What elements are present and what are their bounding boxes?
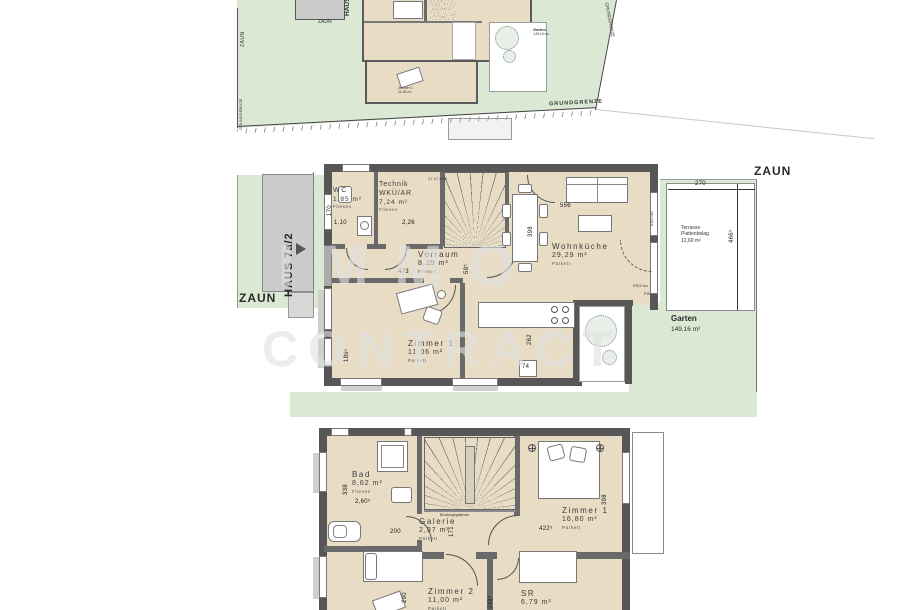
window	[342, 164, 370, 172]
gf-glass-east-note: ESG iso	[649, 211, 654, 226]
gf-room-zimmer1-label: Zimmer 1 11,06 m² Parkett	[408, 339, 455, 363]
site-mini-hall-white	[452, 22, 476, 60]
tree-icon	[602, 350, 617, 365]
gf-glass-south-note: ESG iso	[633, 283, 648, 288]
site-mini-stairs	[430, 0, 456, 20]
gf-haus-label: HAUS 7a/2	[283, 232, 295, 297]
site-garten-label: Garten 149,16 m²	[533, 27, 549, 36]
gf-neighbor-dashed-line	[313, 172, 314, 294]
dim-zimmer1-width: 422⁵	[539, 526, 553, 532]
gf-room-vorraum-label: Vorraum 8,29 m² Fliesen	[418, 250, 459, 274]
wall	[625, 303, 632, 384]
window	[319, 556, 327, 598]
tree-icon	[495, 26, 519, 50]
site-neighbor-building	[295, 0, 345, 20]
window-sill	[318, 290, 324, 334]
gf-room-technik-label: Technik WKÜ/AR 7,24 m² Fliesen	[379, 181, 412, 212]
uf-side-strip	[632, 432, 664, 554]
sink	[391, 487, 412, 503]
gf-terrasse	[666, 183, 755, 311]
dim-ess-height: 398	[528, 226, 534, 237]
chair	[502, 232, 511, 246]
ceiling-fixture-icon	[528, 444, 536, 452]
uf-room-zimmer1-label: Zimmer 1 16,80 m² Parkett	[562, 506, 609, 530]
wall	[417, 436, 422, 514]
tree-icon	[585, 315, 617, 347]
gf-glass-fix-note: FIX	[644, 291, 650, 296]
tree-icon	[503, 50, 516, 63]
site-zaun-left-label: ZAUN	[240, 31, 246, 47]
gf-zaun-right-label: ZAUN	[754, 164, 791, 178]
site-neighbor-zaun-label: ZAUN	[318, 19, 332, 25]
uf-stairs-railing	[424, 510, 516, 512]
site-mini-room-label: Zimmer 1 11,06 m²	[398, 86, 413, 95]
window	[324, 288, 332, 330]
wall	[476, 552, 497, 559]
chair	[502, 204, 511, 218]
wall	[374, 172, 378, 246]
chair	[518, 263, 532, 272]
dim-zimmer1-height: 189⁵	[344, 348, 350, 362]
site-mini-wing	[365, 60, 478, 104]
dim-kueche-width: 74	[522, 364, 529, 370]
washing-machine-drum	[360, 221, 369, 230]
pillow	[365, 553, 377, 580]
sofa-divider	[597, 177, 598, 203]
window	[340, 378, 382, 386]
dim-kueche-height: 262	[527, 334, 533, 345]
gf-room-wc-label: WC 1,85 m² Fliesen	[333, 187, 362, 210]
cooktop-burner	[551, 317, 558, 324]
gf-garden-bottom-strip	[290, 392, 757, 417]
uf-room-sr-label: SR 6,79 m²	[521, 589, 552, 608]
wardrobe	[519, 551, 577, 583]
dim-vorraum-height: 58⁵	[464, 264, 470, 274]
chair	[518, 184, 532, 193]
uf-room-bad-label: Bad 8,62 m² Fliesen	[352, 470, 383, 494]
shower-inner	[381, 445, 404, 468]
gf-zaun-left-label: ZAUN	[239, 291, 276, 305]
window-sill	[341, 386, 382, 391]
dimension-line	[737, 184, 738, 310]
ceiling-fixture-icon	[596, 444, 604, 452]
wall	[460, 283, 465, 383]
vent	[404, 428, 412, 436]
gf-terrasse-height-dim: 466⁵	[729, 229, 735, 243]
site-mini-room-white	[393, 1, 423, 19]
wall	[424, 0, 427, 22]
site-haus-label-cut: HAUS	[344, 0, 351, 16]
site-boundary-continuation	[596, 109, 875, 139]
window-sill	[313, 557, 319, 599]
cooktop-burner	[562, 317, 569, 324]
dim-sr-height: 248⁵	[488, 595, 494, 609]
dim-wc-width: 1,10	[334, 220, 347, 226]
kitchen-counter	[478, 302, 575, 328]
dim-galerie-height: 171	[449, 526, 455, 537]
vent	[331, 428, 349, 436]
chair	[539, 204, 548, 218]
wall	[319, 428, 630, 436]
dim-wohnkueche-width: 556	[560, 203, 571, 209]
dim-vorraum-width: 473	[398, 269, 409, 275]
wall	[324, 164, 658, 172]
desk-lamp	[437, 290, 446, 299]
dim-galerie-width: 200	[390, 529, 401, 535]
uf-room-zimmer2-label: Zimmer 2 11,00 m² Parkett	[428, 587, 475, 610]
bathtub-inner	[333, 525, 347, 538]
uf-stairs-spine	[465, 446, 475, 504]
window-sill	[318, 338, 324, 368]
dim-bad-width: 2,60⁵	[355, 499, 371, 505]
gf-room-wohnkueche-label: Wohnküche 29,29 m² Parkett	[552, 242, 609, 266]
pillow	[569, 446, 587, 464]
window	[324, 338, 332, 366]
chair	[539, 232, 548, 246]
floorplan-page: ZAUN GRUNDGRENZE ZAUN HAUS Zimmer 1 11,0…	[0, 0, 915, 610]
cooktop-burner	[562, 306, 569, 313]
dim-bad-height: 338	[343, 484, 349, 495]
gf-terrasse-width-dim: 270	[695, 181, 706, 187]
gf-stairs-note: 17 17,3/26	[428, 176, 447, 181]
gf-stairs	[444, 172, 506, 248]
cooktop-burner	[551, 306, 558, 313]
window-sill	[453, 386, 498, 391]
window	[622, 452, 630, 504]
window	[319, 452, 327, 492]
dim-wc-height: 170	[327, 205, 333, 216]
gf-garten-label: Garten 149,16 m²	[671, 314, 700, 334]
door-opening	[424, 278, 450, 283]
window-sill	[313, 453, 319, 493]
dimension-line	[668, 189, 755, 190]
dim-zimmer2-height: 290	[402, 592, 408, 603]
coffee-table	[578, 215, 612, 232]
gf-terrasse-label: Terrasse Plattenbelag 12,60 m²	[681, 225, 709, 244]
window	[452, 378, 498, 386]
dining-table	[512, 194, 538, 262]
gf-haus-arrow-icon	[296, 243, 306, 255]
dim-zimmer1-height: 398	[602, 494, 608, 505]
dim-technik-width: 2,26	[402, 220, 415, 226]
